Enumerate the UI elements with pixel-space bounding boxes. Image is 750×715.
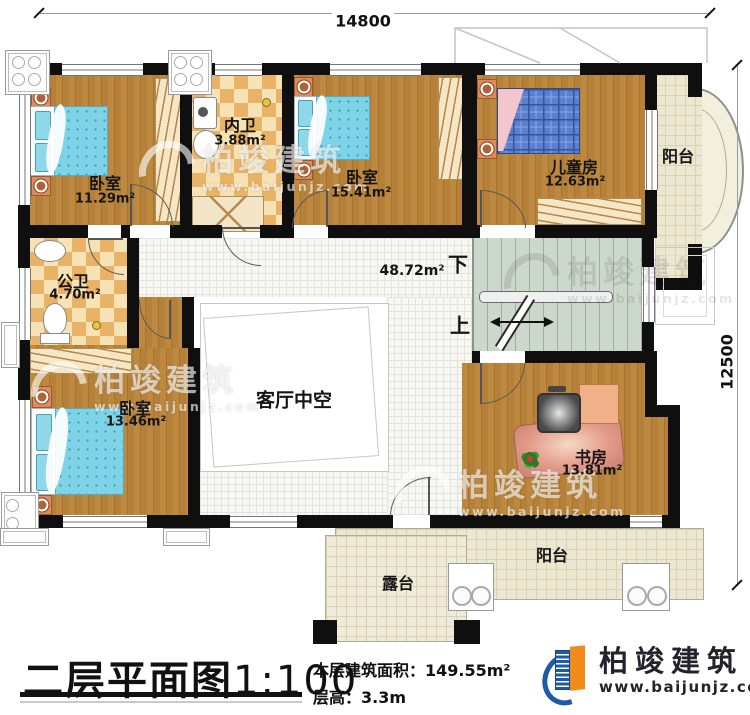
terrace-label: 露台	[382, 570, 414, 594]
bedroom2-label: 卧室	[346, 164, 378, 188]
window-planter	[0, 528, 49, 546]
monitor-stand	[548, 386, 566, 392]
plan-title-text: 二层平面图	[23, 658, 233, 704]
wall	[525, 351, 657, 363]
pot-icon	[452, 586, 472, 606]
dimension-line-right	[737, 66, 738, 586]
balcony-sliding-door	[646, 110, 658, 190]
pot-icon	[28, 56, 41, 69]
plan-title: 二层平面图1:100	[23, 648, 358, 706]
washer-door-icon	[198, 107, 208, 117]
stair-handrail	[479, 291, 613, 303]
wall	[642, 322, 654, 351]
hall-area: 48.72m²	[379, 263, 444, 279]
kids-room-area: 12.63m²	[545, 175, 605, 190]
balcony-right-label: 阳台	[662, 143, 694, 167]
pot-icon	[190, 73, 203, 86]
floor-area-label: 本层建筑面积：	[313, 661, 425, 680]
desk-mat	[579, 384, 619, 424]
washing-machine	[193, 97, 217, 129]
lamp-icon	[297, 164, 310, 177]
window	[63, 516, 147, 528]
pot-icon	[471, 586, 491, 606]
floor-height-label: 层高：	[313, 688, 361, 707]
pot-icon	[174, 56, 187, 69]
stair-direction-line	[498, 321, 546, 323]
nightstand	[477, 79, 497, 99]
nightstand	[477, 139, 497, 159]
door-leaf	[222, 227, 260, 229]
window	[330, 64, 421, 76]
wall	[645, 405, 680, 417]
roof-outline	[663, 255, 707, 317]
wall	[260, 225, 294, 238]
window-planter	[168, 50, 212, 95]
pot-icon	[627, 586, 647, 606]
window	[230, 516, 297, 528]
toilet	[43, 303, 67, 335]
title-underline-2	[20, 701, 302, 703]
public-bath-area: 4.70m²	[49, 288, 100, 303]
dimension-height: 12500	[718, 331, 737, 393]
wall	[170, 225, 222, 238]
nightstand	[31, 176, 51, 196]
planter-box	[448, 563, 494, 611]
wall	[328, 225, 480, 238]
stair-edge-line	[472, 238, 474, 351]
sink	[34, 240, 66, 262]
floor-height-info: 层高：3.3m	[313, 684, 406, 708]
wall	[645, 190, 657, 225]
wardrobe	[30, 348, 132, 374]
wall	[147, 515, 230, 528]
window	[19, 400, 31, 498]
inner-bath-area: 3.88m²	[214, 134, 265, 149]
planter-box	[622, 563, 670, 611]
roof-outline	[440, 20, 740, 70]
stair-arrow-left-icon	[490, 317, 500, 327]
dimension-width: 14800	[332, 12, 394, 31]
nightstand	[294, 160, 313, 180]
floor-area-info: 本层建筑面积：149.55m²	[313, 657, 510, 681]
floor-height-value: 3.3m	[361, 688, 406, 707]
nightstand	[294, 77, 313, 97]
lamp-icon	[36, 391, 49, 404]
bedroom1-area: 11.29m²	[75, 192, 135, 207]
wall	[297, 515, 393, 528]
computer-monitor-icon	[537, 393, 581, 433]
brand-logo-icon	[543, 646, 591, 704]
door-knob-icon	[92, 321, 101, 330]
wardrobe	[537, 198, 642, 225]
bedroom1-label: 卧室	[89, 170, 121, 194]
living-void-label: 客厅中空	[256, 386, 332, 413]
window	[62, 64, 143, 76]
lamp-icon	[35, 180, 48, 193]
wardrobe	[438, 77, 464, 180]
logo-building-blue-icon	[555, 650, 570, 690]
study-area: 13.81m²	[562, 464, 622, 479]
door-leaf	[88, 238, 123, 240]
door-leaf	[480, 190, 482, 227]
pot-icon	[28, 73, 41, 86]
plant-icon	[518, 448, 542, 470]
wall	[188, 348, 200, 515]
stair-arrow-right-icon	[544, 317, 554, 327]
pot-icon	[174, 73, 187, 86]
wall	[645, 75, 657, 110]
pot-icon	[12, 73, 25, 86]
window	[643, 267, 655, 322]
window-planter	[163, 528, 210, 546]
study-floor	[645, 417, 668, 515]
door-leaf	[326, 190, 328, 227]
wall	[182, 297, 194, 348]
wall	[462, 63, 477, 225]
title-underline	[20, 692, 302, 697]
door-leaf	[428, 477, 430, 515]
window	[215, 64, 262, 76]
title-block: 二层平面图1:100 本层建筑面积：149.55m² 层高：3.3m 柏竣建筑 …	[0, 640, 750, 715]
door-leaf	[480, 363, 482, 403]
nightstand	[32, 386, 52, 408]
wall	[430, 515, 630, 528]
lamp-icon	[481, 143, 494, 156]
stairs-up-label: 上	[450, 310, 470, 339]
wall	[262, 63, 330, 75]
inner-bath-label: 内卫	[224, 112, 256, 136]
door-knob-icon	[262, 98, 271, 107]
wall	[18, 205, 30, 268]
bedroom3-area: 13.46m²	[106, 415, 166, 430]
brand-name: 柏竣建筑	[599, 646, 750, 678]
wall	[282, 75, 294, 225]
toilet-tank	[40, 333, 70, 344]
floor-plan: 柏竣建筑 www.baijunjz.com 柏竣建筑 www.baijunjz.…	[0, 0, 750, 715]
pot-icon	[647, 586, 667, 606]
wall	[642, 238, 654, 267]
wall	[30, 225, 88, 238]
wall	[121, 225, 130, 238]
wall	[668, 417, 680, 528]
brand-logo: 柏竣建筑 www.baijunjz.com	[543, 646, 750, 704]
window-planter	[1, 322, 20, 368]
logo-building-orange-icon	[570, 645, 585, 691]
window	[19, 95, 31, 205]
window	[630, 516, 662, 528]
lamp-icon	[481, 83, 494, 96]
pot-icon	[190, 56, 203, 69]
window-planter	[5, 50, 50, 95]
wall	[535, 225, 657, 238]
floor-area-value: 149.55m²	[425, 661, 510, 680]
pot-icon	[12, 56, 25, 69]
wall	[127, 238, 139, 348]
door-leaf	[169, 300, 171, 338]
brand-website: www.baijunjz.com	[599, 678, 750, 696]
stairs-down-label: 下	[448, 249, 468, 278]
balcony-bottom-label: 阳台	[536, 542, 568, 566]
pot-icon	[6, 499, 19, 512]
window	[19, 268, 31, 340]
wall	[472, 351, 480, 363]
wall	[180, 75, 192, 225]
hall-floor	[200, 470, 387, 515]
lamp-icon	[297, 81, 310, 94]
bedroom2-area: 15.41m²	[331, 186, 391, 201]
